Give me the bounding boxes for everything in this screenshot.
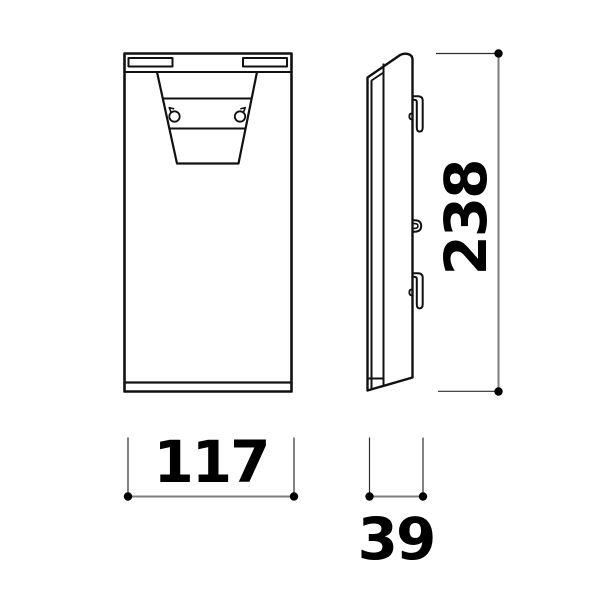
side-body-outline [368,54,413,391]
front-right-clip-slot [243,58,287,67]
depth-dimension-label: 39 [358,505,435,573]
height-dim-dot-top [494,49,502,57]
height-dim-dot-bottom [494,387,502,395]
front-recess-trapezoid [157,72,257,164]
width-dim-dot-left [124,492,132,500]
technical-drawing: 238 117 39 [0,0,600,600]
width-dim-dot-right [290,492,298,500]
height-dimension: 238 [432,49,503,395]
width-dimension-label: 117 [153,428,268,496]
depth-dim-dot-right [419,492,427,500]
front-view [125,54,292,392]
left-keyhole-icon [169,111,179,121]
depth-dim-dot-left [365,492,373,500]
technical-drawing-canvas: 238 117 39 [0,0,600,600]
side-view [368,54,423,391]
height-dimension-label: 238 [432,160,500,275]
width-dimension: 117 [124,428,298,501]
side-upper-hook [413,96,423,131]
front-body-outline [125,54,292,392]
side-lower-hook [413,273,423,308]
side-middle-tab-outer [413,220,422,231]
depth-dimension: 39 [358,438,435,574]
right-keyhole-icon [235,111,245,121]
front-left-clip-slot [129,58,173,67]
